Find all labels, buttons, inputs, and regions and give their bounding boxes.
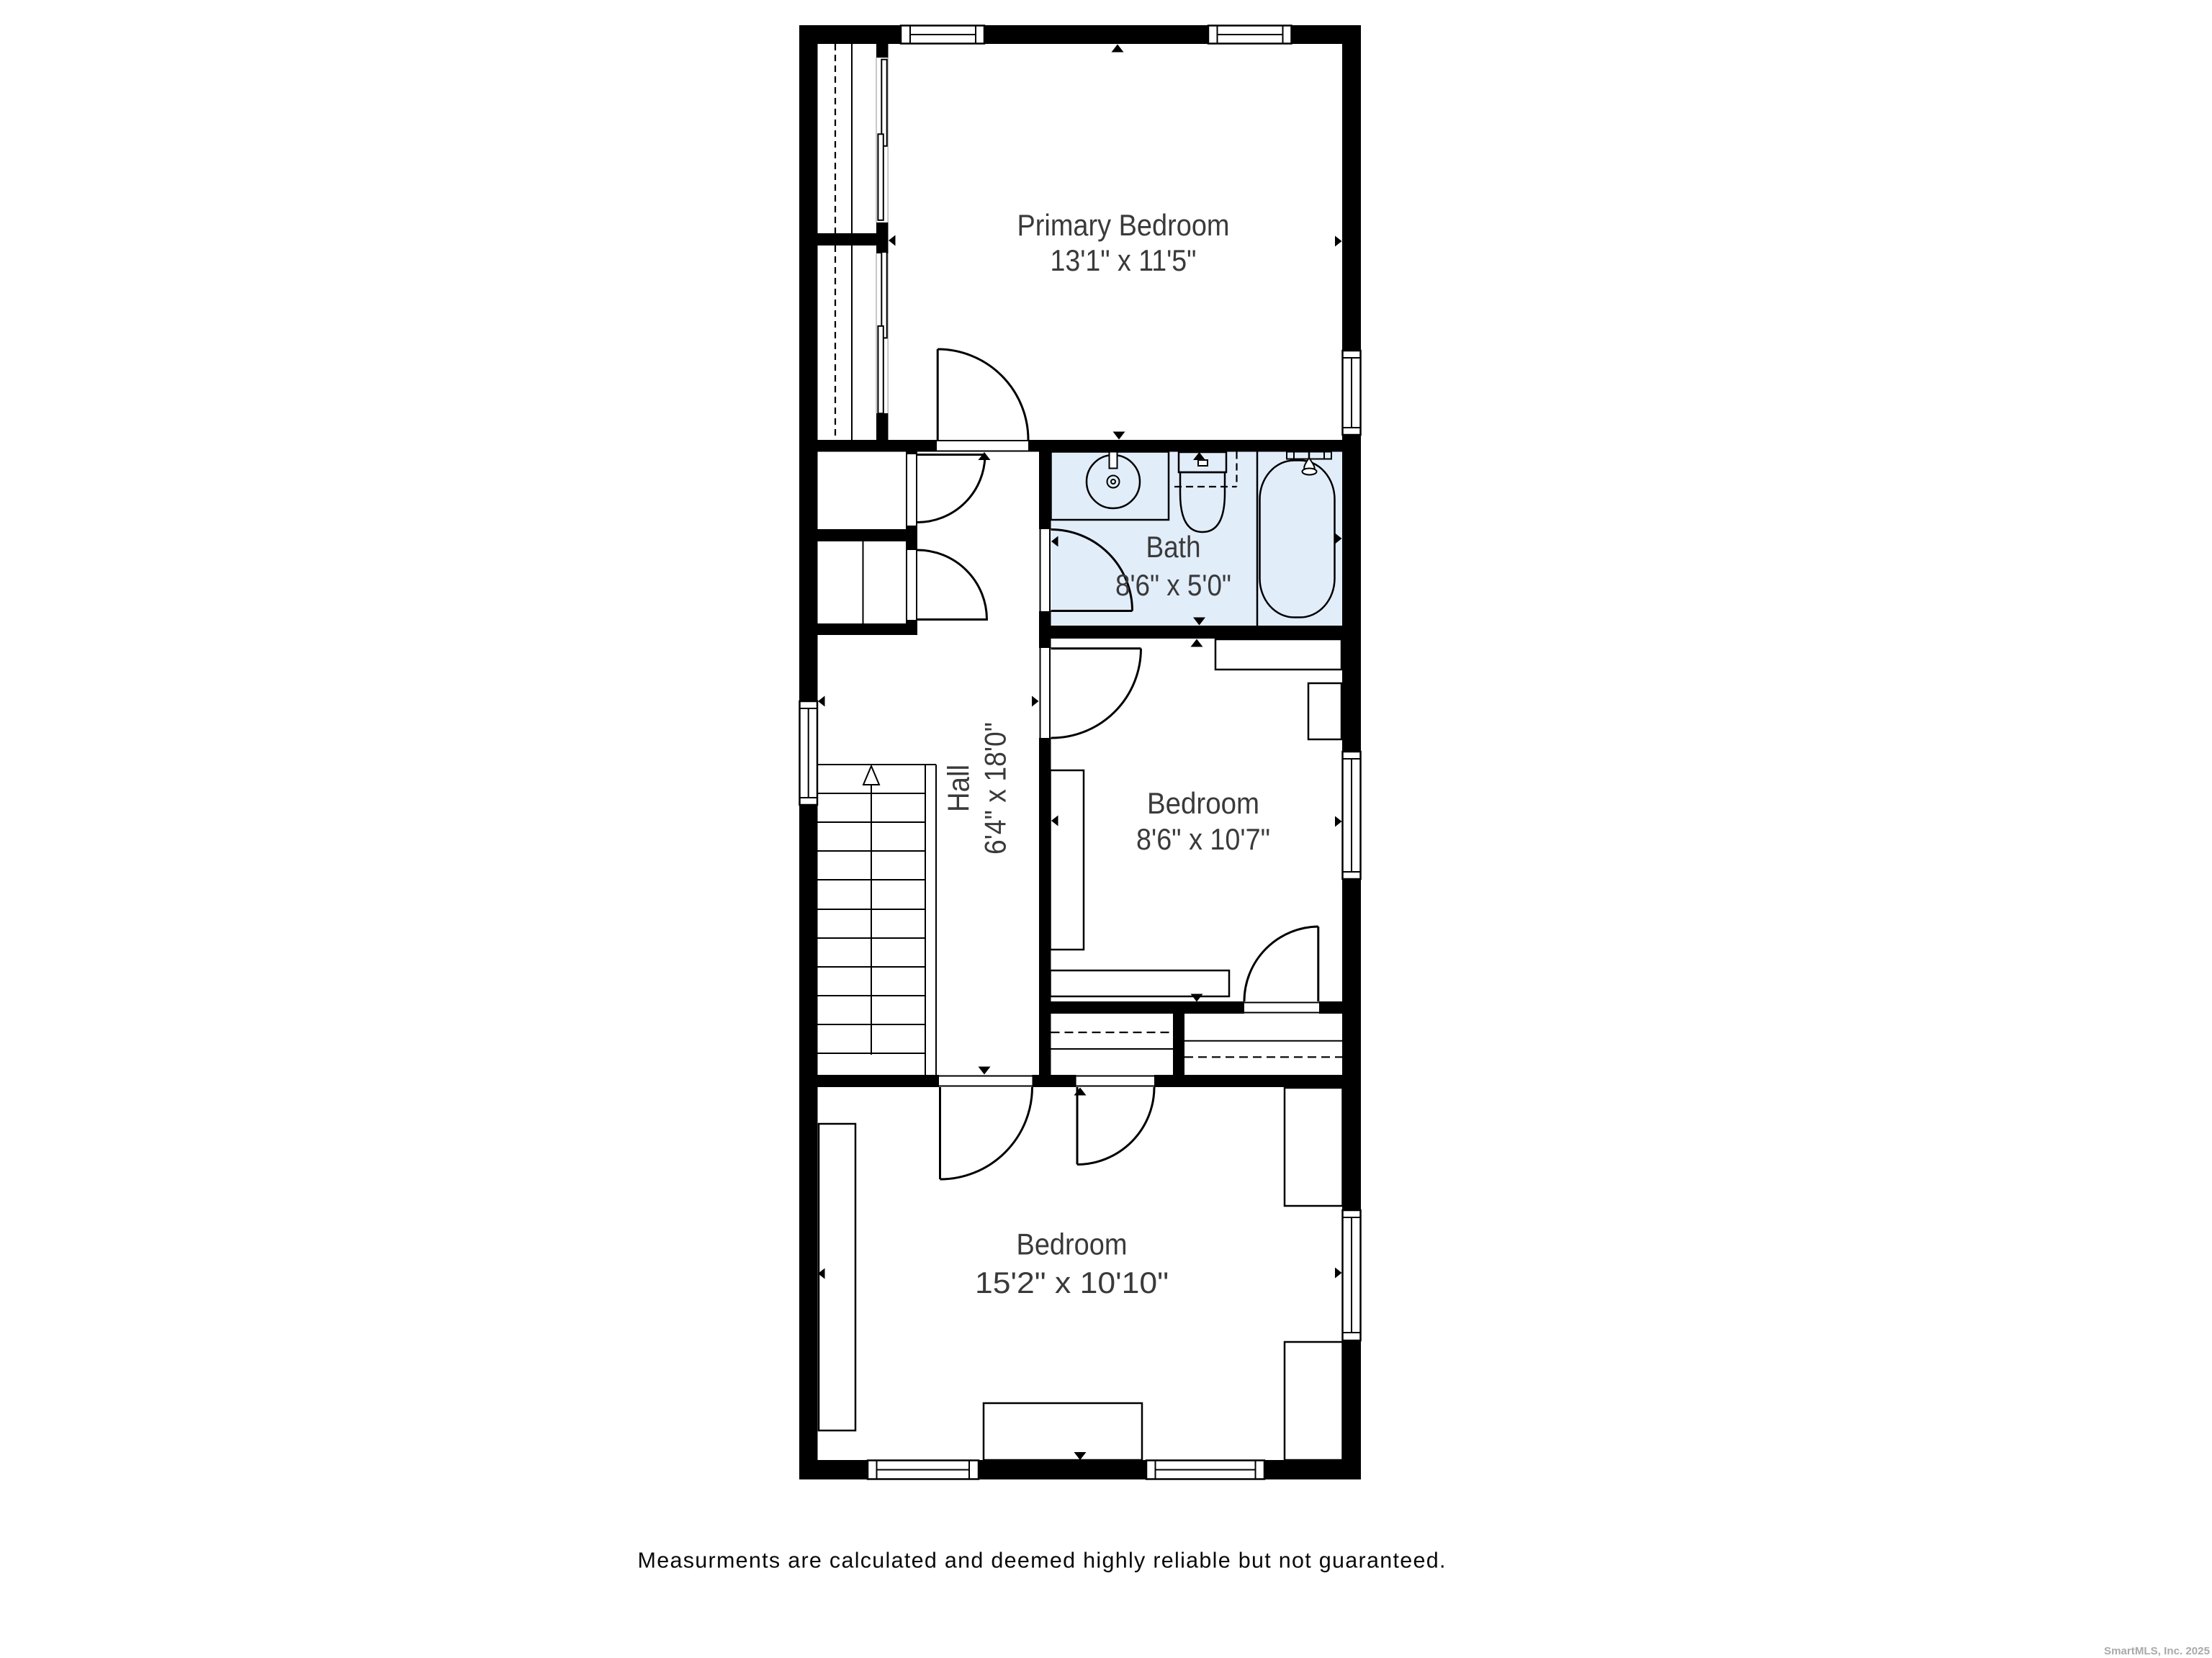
svg-text:Measurments are calculated and: Measurments are calculated and deemed hi…: [638, 1549, 1446, 1573]
svg-text:SmartMLS, Inc. 2025: SmartMLS, Inc. 2025: [2104, 1645, 2210, 1657]
svg-text:15'2" x 10'10": 15'2" x 10'10": [975, 1266, 1169, 1299]
svg-text:8'6" x 10'7": 8'6" x 10'7": [1136, 822, 1270, 856]
svg-text:Bedroom: Bedroom: [1147, 786, 1259, 820]
svg-text:8'6" x 5'0": 8'6" x 5'0": [1115, 568, 1231, 602]
svg-text:Bedroom: Bedroom: [1017, 1227, 1128, 1261]
svg-text:6'4" x 18'0": 6'4" x 18'0": [978, 722, 1012, 855]
svg-text:Hall: Hall: [941, 765, 975, 812]
svg-text:Primary Bedroom: Primary Bedroom: [1017, 208, 1230, 242]
svg-text:Bath: Bath: [1146, 530, 1201, 564]
svg-text:13'1" x 11'5": 13'1" x 11'5": [1051, 243, 1197, 277]
